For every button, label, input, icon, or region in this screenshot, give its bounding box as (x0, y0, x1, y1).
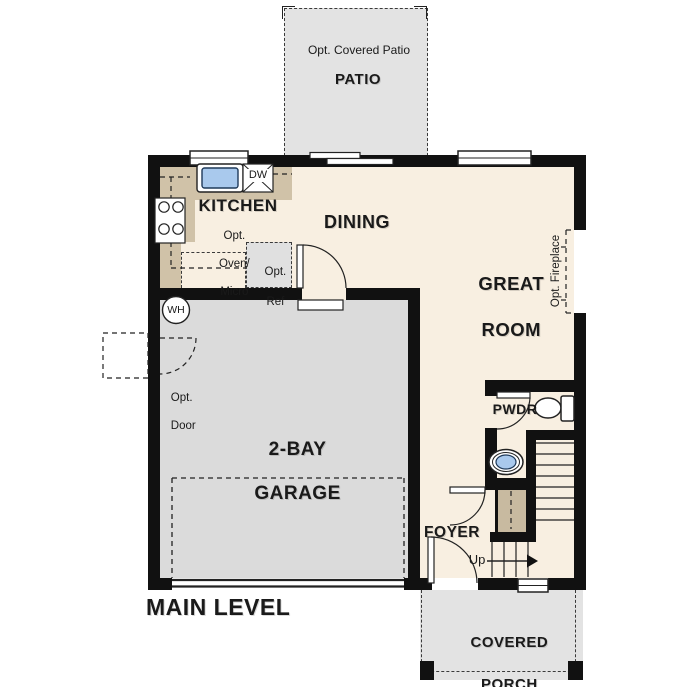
garage-entry-door (297, 245, 346, 310)
kitchen-note-line3: Micro (220, 286, 248, 298)
dishwasher-label: DW (243, 169, 273, 181)
vanity-sink-icon (489, 450, 523, 475)
porch-line1: COVERED (470, 634, 548, 651)
porch-line2: PORCH (481, 676, 538, 687)
closet-door (450, 487, 511, 529)
great-room-line1: GREAT (478, 273, 544, 294)
great-room-window (458, 151, 531, 165)
kitchen-window (190, 151, 248, 165)
garage-label: 2-BAY GARAGE (206, 417, 366, 527)
dining-label: DINING (297, 212, 417, 233)
porch-label: COVERED PORCH (430, 611, 570, 687)
foyer-window (518, 579, 548, 592)
fireplace-note: Opt. Fireplace (549, 235, 563, 307)
opt-ref-line2: Ref (266, 296, 284, 308)
opt-ref-label: Opt. Ref (246, 250, 292, 325)
garage-line2: GARAGE (254, 483, 340, 504)
up-arrow (487, 555, 538, 568)
patio-sliding-door (310, 153, 393, 165)
plan-title: MAIN LEVEL (146, 594, 366, 621)
kitchen-note-line1: Opt. (224, 230, 246, 242)
opt-door-line1: Opt. (171, 392, 193, 404)
opt-ref-line1: Opt. (265, 266, 287, 278)
garage-opt-door-swing (103, 333, 196, 378)
opt-door-line2: Door (171, 420, 196, 432)
opt-door-note: Opt. Door (158, 377, 198, 447)
garage-line1: 2-BAY (269, 439, 327, 460)
patio-label: PATIO (298, 71, 418, 88)
plan-linework (0, 0, 687, 687)
kitchen-label: KITCHEN (163, 196, 313, 216)
pwdr-label: PWDR (484, 401, 546, 417)
foyer-label: FOYER (412, 524, 492, 542)
patio-note: Opt. Covered Patio (284, 43, 434, 57)
great-room-line2: ROOM (482, 319, 542, 340)
kitchen-sink-icon (197, 164, 243, 192)
great-room-label: GREAT ROOM (440, 249, 560, 364)
floor-plan: Opt. Covered Patio PATIO KITCHEN Opt. Ov… (0, 0, 687, 687)
garage-door (172, 580, 404, 587)
up-label: Up (464, 552, 490, 567)
water-heater-label: WH (162, 304, 190, 316)
